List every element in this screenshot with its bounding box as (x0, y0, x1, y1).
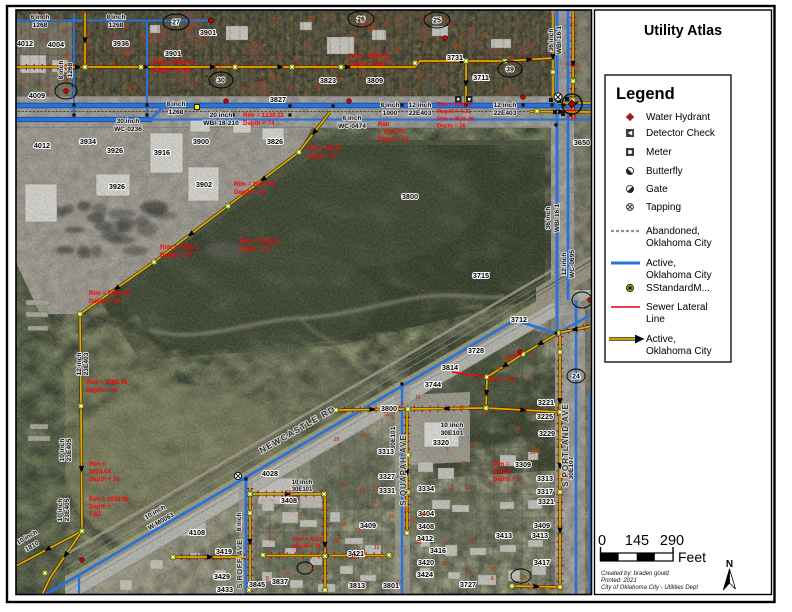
svg-text:12 inch: 12 inch (494, 102, 517, 109)
svg-text:18: 18 (359, 488, 365, 494)
svg-text:290: 290 (660, 533, 684, 549)
svg-text:31: 31 (269, 537, 275, 543)
svg-text:23E405: 23E405 (66, 438, 73, 461)
svg-text:SStandardM...: SStandardM... (646, 283, 710, 294)
svg-text:24: 24 (157, 58, 163, 64)
svg-text:22E403: 22E403 (409, 110, 432, 117)
svg-text:5: 5 (206, 36, 209, 42)
svg-text:9: 9 (179, 53, 182, 59)
svg-text:10: 10 (383, 21, 389, 27)
svg-text:3934: 3934 (80, 137, 97, 146)
svg-text:7: 7 (355, 577, 358, 583)
svg-text:Depth =: Depth = (89, 505, 112, 511)
svg-text:Rim = 4202: Rim = 4202 (293, 537, 322, 543)
svg-text:12 inch: 12 inch (561, 253, 568, 276)
svg-text:3926: 3926 (109, 182, 125, 191)
svg-text:38: 38 (372, 23, 378, 29)
svg-text:3413: 3413 (496, 531, 512, 540)
svg-text:48: 48 (45, 83, 51, 89)
svg-text:29: 29 (361, 433, 367, 439)
svg-text:13: 13 (482, 32, 488, 38)
svg-text:3408: 3408 (281, 496, 297, 505)
svg-text:20 inch: 20 inch (210, 112, 233, 119)
svg-text:20: 20 (521, 575, 527, 581)
svg-text:16: 16 (528, 354, 534, 360)
svg-text:40: 40 (508, 56, 514, 62)
svg-text:Legend: Legend (616, 85, 675, 103)
svg-text:Oklahoma City: Oklahoma City (646, 270, 712, 281)
svg-text:4: 4 (20, 30, 23, 36)
svg-text:Water Hydrant: Water Hydrant (646, 112, 710, 123)
svg-text:40: 40 (336, 77, 342, 83)
svg-text:13: 13 (275, 77, 281, 83)
svg-text:41: 41 (364, 20, 370, 26)
svg-text:Meter: Meter (646, 147, 672, 158)
svg-text:Depth = 11: Depth = 11 (234, 189, 266, 196)
svg-text:17: 17 (155, 66, 161, 72)
svg-text:3221: 3221 (538, 398, 554, 407)
svg-text:47: 47 (186, 27, 192, 33)
svg-text:3809: 3809 (367, 76, 383, 85)
svg-text:3433: 3433 (217, 585, 233, 594)
svg-text:29: 29 (410, 519, 416, 525)
svg-text:40: 40 (565, 62, 571, 68)
svg-text:1: 1 (394, 42, 397, 48)
svg-text:23: 23 (40, 15, 46, 21)
svg-text:34: 34 (387, 60, 393, 66)
svg-text:3321: 3321 (538, 497, 554, 506)
svg-text:25: 25 (293, 57, 299, 63)
svg-text:Tapping: Tapping (646, 202, 681, 213)
svg-text:26: 26 (286, 87, 292, 93)
svg-text:Detector Check: Detector Check (646, 128, 716, 139)
svg-text:Rim = 1029.43: Rim = 1029.43 (239, 238, 281, 245)
svg-text:City of Oklahoma City - Utilit: City of Oklahoma City - Utilities Dept (601, 585, 698, 591)
svg-text:33: 33 (503, 357, 509, 363)
svg-text:47: 47 (285, 572, 291, 578)
svg-text:10: 10 (483, 410, 489, 416)
svg-text:3320: 3320 (433, 438, 449, 447)
svg-text:10 inch: 10 inch (57, 499, 64, 522)
svg-text:4004: 4004 (48, 40, 65, 49)
svg-text:15: 15 (415, 395, 421, 401)
svg-text:36 inch: 36 inch (545, 207, 552, 230)
svg-text:Rim = 1231.79: Rim = 1231.79 (349, 53, 391, 60)
svg-text:Abandoned,: Abandoned, (646, 226, 700, 237)
svg-text:34: 34 (285, 490, 291, 496)
svg-text:36 inch: 36 inch (548, 29, 555, 52)
svg-text:45: 45 (534, 447, 540, 453)
svg-text:3711: 3711 (473, 73, 489, 82)
svg-text:30: 30 (217, 78, 225, 85)
svg-text:WBI-18-210: WBI-18-210 (203, 120, 239, 127)
svg-text:27: 27 (443, 19, 449, 25)
svg-text:32: 32 (404, 508, 410, 514)
svg-text:2: 2 (512, 45, 515, 51)
svg-text:3313: 3313 (378, 447, 394, 456)
svg-text:31: 31 (572, 23, 578, 29)
svg-text:Printed: 2021: Printed: 2021 (601, 578, 637, 584)
svg-text:4012: 4012 (34, 141, 50, 150)
svg-text:3827: 3827 (270, 95, 286, 104)
svg-text:34: 34 (302, 531, 308, 537)
svg-text:7.62: 7.62 (89, 512, 101, 518)
svg-text:3416: 3416 (430, 546, 446, 555)
svg-text:S PORTLAND AVE: S PORTLAND AVE (561, 403, 570, 487)
svg-text:30E101: 30E101 (441, 430, 464, 437)
svg-text:44: 44 (371, 500, 377, 506)
svg-text:Rim =: Rim = (89, 462, 106, 468)
svg-text:25: 25 (455, 45, 461, 51)
svg-text:Depth = 5: Depth = 5 (307, 153, 336, 160)
svg-text:1000: 1000 (383, 110, 398, 117)
svg-text:Rim = 4.3: Rim = 4.3 (488, 376, 516, 383)
svg-text:22E403: 22E403 (494, 110, 517, 117)
svg-text:13: 13 (444, 539, 450, 545)
svg-text:47: 47 (126, 52, 132, 58)
svg-text:12: 12 (272, 18, 278, 24)
svg-text:WC-0474: WC-0474 (338, 123, 366, 130)
svg-text:Line: Line (646, 314, 665, 325)
svg-text:38: 38 (20, 78, 26, 84)
svg-text:40: 40 (351, 555, 357, 561)
svg-text:37: 37 (310, 16, 316, 22)
svg-text:= 16: = 16 (566, 115, 577, 121)
svg-text:27: 27 (172, 20, 180, 27)
svg-text:3826: 3826 (267, 137, 283, 146)
svg-text:10 inch: 10 inch (441, 422, 464, 429)
svg-text:3823: 3823 (320, 76, 336, 85)
svg-text:32: 32 (258, 81, 264, 87)
svg-text:8: 8 (266, 576, 269, 582)
svg-text:4009: 4009 (29, 91, 45, 100)
svg-text:Rim = 1025.16: Rim = 1025.16 (86, 379, 128, 386)
svg-text:3309: 3309 (515, 460, 531, 469)
svg-text:15: 15 (374, 545, 380, 551)
svg-text:Oklahoma City: Oklahoma City (646, 346, 712, 357)
svg-text:8 inch: 8 inch (58, 60, 65, 79)
svg-text:3327: 3327 (379, 472, 395, 481)
svg-text:3800: 3800 (402, 192, 418, 201)
svg-text:Depth = 16: Depth = 16 (437, 124, 465, 130)
svg-text:7: 7 (361, 45, 364, 51)
svg-text:44: 44 (238, 85, 244, 91)
svg-text:= 1007.65: = 1007.65 (378, 130, 406, 136)
svg-text:10 inch: 10 inch (292, 480, 313, 486)
svg-text:3419: 3419 (216, 547, 232, 556)
svg-text:4012: 4012 (17, 39, 33, 48)
svg-text:4202.6: 4202.6 (493, 470, 512, 476)
svg-text:3317: 3317 (537, 487, 553, 496)
svg-text:20: 20 (466, 485, 472, 491)
svg-text:45: 45 (574, 63, 580, 69)
svg-text:3728: 3728 (468, 346, 484, 355)
svg-text:42: 42 (448, 488, 454, 494)
svg-text:Rim = 36.26: Rim = 36.26 (307, 145, 342, 152)
svg-text:21: 21 (416, 540, 422, 546)
svg-text:38: 38 (315, 84, 321, 90)
svg-text:33: 33 (420, 512, 426, 518)
svg-text:27: 27 (85, 33, 91, 39)
svg-text:3409: 3409 (534, 521, 550, 530)
svg-text:4028: 4028 (262, 469, 278, 478)
svg-text:14: 14 (192, 79, 198, 85)
svg-text:3916: 3916 (154, 148, 170, 157)
svg-text:Rim = 1026.37: Rim = 1026.37 (89, 290, 131, 297)
svg-text:10 inch: 10 inch (59, 439, 66, 462)
svg-text:23E403: 23E403 (83, 352, 90, 375)
svg-text:45: 45 (191, 21, 197, 27)
svg-text:Rim = 1028.5: Rim = 1028.5 (160, 244, 198, 251)
svg-text:45: 45 (339, 483, 345, 489)
svg-text:13: 13 (355, 528, 361, 534)
svg-text:Depth = 1: Depth = 1 (493, 477, 521, 483)
svg-text:5: 5 (358, 20, 361, 26)
svg-text:43: 43 (309, 568, 315, 574)
svg-text:18: 18 (466, 569, 472, 575)
svg-text:1268: 1268 (109, 22, 124, 29)
svg-text:Depth = 10: Depth = 10 (86, 387, 118, 394)
svg-text:20: 20 (334, 437, 340, 443)
svg-text:36: 36 (470, 27, 476, 33)
svg-text:9: 9 (357, 546, 360, 552)
svg-text:Active,: Active, (646, 258, 676, 269)
svg-text:1268: 1268 (33, 22, 48, 29)
svg-text:Rim: Rim (566, 108, 576, 114)
svg-text:Depth = 74: Depth = 74 (243, 120, 275, 127)
svg-text:Gate: Gate (646, 184, 668, 195)
svg-text:3: 3 (391, 415, 394, 421)
svg-text:8 inch: 8 inch (166, 101, 185, 108)
svg-text:6 inch: 6 inch (342, 115, 361, 122)
svg-text:21: 21 (359, 72, 365, 78)
svg-text:36: 36 (110, 61, 116, 67)
svg-text:6: 6 (250, 55, 253, 61)
svg-text:48: 48 (63, 54, 69, 60)
svg-text:8: 8 (491, 576, 494, 582)
svg-text:3715: 3715 (473, 271, 489, 280)
svg-text:30E101: 30E101 (390, 426, 397, 449)
svg-text:16: 16 (448, 23, 454, 29)
svg-text:30: 30 (491, 567, 497, 573)
svg-text:5: 5 (401, 401, 404, 407)
svg-text:29: 29 (72, 24, 78, 30)
svg-text:Created by: braden gould: Created by: braden gould (601, 571, 669, 577)
svg-text:Active,: Active, (646, 334, 676, 345)
svg-text:30: 30 (276, 55, 282, 61)
svg-text:12 inch: 12 inch (409, 102, 432, 109)
svg-text:Rim: Rim (378, 122, 389, 128)
svg-text:15: 15 (420, 37, 426, 43)
svg-text:Depth = 10: Depth = 10 (89, 477, 120, 483)
svg-text:35: 35 (384, 412, 390, 418)
svg-text:25: 25 (433, 18, 441, 25)
svg-text:8 inch: 8 inch (106, 14, 125, 21)
svg-text:3424: 3424 (417, 570, 434, 579)
svg-text:13: 13 (257, 56, 263, 62)
svg-text:17: 17 (82, 52, 88, 58)
svg-text:4108: 4108 (189, 528, 205, 537)
svg-text:3900: 3900 (193, 137, 209, 146)
svg-text:Rim = 3626.26: Rim = 3626.26 (437, 116, 474, 122)
svg-text:40: 40 (140, 33, 146, 39)
svg-text:27: 27 (196, 15, 202, 21)
svg-text:30 inch: 30 inch (117, 118, 140, 125)
svg-text:145: 145 (625, 533, 649, 549)
svg-text:44: 44 (341, 522, 347, 528)
svg-text:39: 39 (506, 67, 514, 74)
svg-text:1: 1 (152, 36, 155, 42)
svg-text:3313: 3313 (537, 474, 553, 483)
svg-text:Rim = 1031.92: Rim = 1031.92 (234, 181, 276, 188)
svg-text:3413: 3413 (532, 531, 548, 540)
svg-text:13: 13 (373, 488, 379, 494)
svg-text:3727: 3727 (460, 580, 476, 589)
svg-text:3814: 3814 (442, 363, 459, 372)
svg-text:31: 31 (459, 406, 465, 412)
svg-text:1268: 1268 (169, 109, 184, 116)
svg-text:Feet: Feet (678, 549, 706, 565)
svg-text:WC-0695: WC-0695 (569, 250, 576, 278)
svg-text:2: 2 (416, 85, 419, 91)
svg-text:30E101: 30E101 (292, 487, 313, 493)
svg-text:14: 14 (62, 30, 68, 36)
svg-text:3936: 3936 (113, 39, 129, 48)
svg-text:12 inch: 12 inch (76, 353, 83, 376)
svg-text:5: 5 (446, 447, 449, 453)
svg-text:3837: 3837 (272, 577, 288, 586)
svg-text:WBI-16-1: WBI-16-1 (554, 204, 561, 233)
svg-text:30: 30 (461, 461, 467, 467)
svg-text:Rim = 1230.8: Rim = 1230.8 (437, 102, 471, 108)
svg-text:8 inch: 8 inch (236, 512, 243, 531)
svg-text:3650: 3650 (574, 138, 590, 147)
svg-text:0: 0 (598, 533, 606, 549)
svg-text:42: 42 (469, 539, 475, 545)
svg-text:3331: 3331 (379, 486, 395, 495)
svg-text:2: 2 (299, 512, 302, 518)
svg-text:34: 34 (269, 76, 275, 82)
svg-text:9: 9 (527, 376, 530, 382)
svg-text:Reg.M = 4.31: Reg.M = 4.31 (437, 109, 471, 115)
svg-text:8 inch: 8 inch (380, 102, 399, 109)
svg-text:Oklahoma City: Oklahoma City (646, 238, 712, 249)
svg-text:23E405: 23E405 (64, 498, 71, 521)
svg-text:3225: 3225 (537, 412, 553, 421)
svg-text:Depth = 10: Depth = 10 (160, 252, 192, 259)
svg-text:S QUAPAH AVE: S QUAPAH AVE (399, 434, 408, 505)
svg-text:Sewer Lateral: Sewer Lateral (646, 302, 708, 313)
svg-text:14: 14 (86, 45, 92, 51)
svg-text:3712: 3712 (511, 315, 527, 324)
svg-text:3420: 3420 (418, 558, 434, 567)
svg-text:Depth = 16: Depth = 16 (378, 137, 409, 143)
svg-text:1268: 1268 (67, 62, 74, 77)
svg-text:25: 25 (441, 561, 447, 567)
svg-text:3902: 3902 (196, 180, 212, 189)
svg-text:30: 30 (419, 15, 425, 21)
svg-text:3334: 3334 (418, 484, 435, 493)
svg-text:3429: 3429 (214, 572, 230, 581)
svg-text:Rim = 1018.96: Rim = 1018.96 (89, 497, 130, 503)
svg-text:Depth = 10: Depth = 10 (239, 246, 271, 253)
svg-text:S ROFF AVE: S ROFF AVE (235, 539, 244, 588)
svg-text:18: 18 (394, 48, 400, 54)
svg-text:3744: 3744 (425, 380, 442, 389)
svg-text:3845: 3845 (249, 580, 265, 589)
svg-text:3229: 3229 (539, 429, 555, 438)
svg-text:16: 16 (56, 17, 62, 23)
svg-text:Depth = 11: Depth = 11 (293, 544, 321, 550)
svg-text:22: 22 (418, 73, 424, 79)
svg-text:26: 26 (378, 58, 384, 64)
svg-text:WBI-16-1: WBI-16-1 (556, 26, 563, 55)
svg-text:WC-0236: WC-0236 (114, 126, 142, 133)
svg-text:Depth = 10: Depth = 10 (89, 298, 121, 305)
svg-text:48: 48 (471, 442, 477, 448)
svg-text:3: 3 (404, 550, 407, 556)
svg-text:5: 5 (219, 65, 222, 71)
svg-text:2: 2 (336, 539, 339, 545)
svg-text:3417: 3417 (534, 558, 550, 567)
svg-text:27: 27 (340, 463, 346, 469)
svg-text:31: 31 (131, 84, 137, 90)
svg-text:42: 42 (389, 514, 395, 520)
svg-text:5: 5 (433, 38, 436, 44)
svg-text:Utility Atlas: Utility Atlas (644, 23, 722, 39)
svg-text:3731: 3731 (447, 53, 463, 62)
svg-text:24: 24 (572, 374, 580, 381)
svg-text:31: 31 (498, 366, 504, 372)
svg-text:3926: 3926 (107, 146, 123, 155)
svg-text:15: 15 (123, 25, 129, 31)
svg-text:Rim =: Rim = (493, 462, 510, 468)
svg-text:Butterfly: Butterfly (646, 166, 683, 177)
svg-text:38: 38 (515, 426, 521, 432)
svg-text:1024.64: 1024.64 (89, 470, 111, 476)
svg-text:3409: 3409 (360, 521, 376, 530)
svg-text:47: 47 (396, 580, 402, 586)
svg-text:Rim = 1230.11: Rim = 1230.11 (243, 112, 284, 119)
svg-text:3408: 3408 (418, 522, 434, 531)
svg-text:N: N (726, 559, 733, 570)
svg-text:6: 6 (460, 34, 463, 40)
